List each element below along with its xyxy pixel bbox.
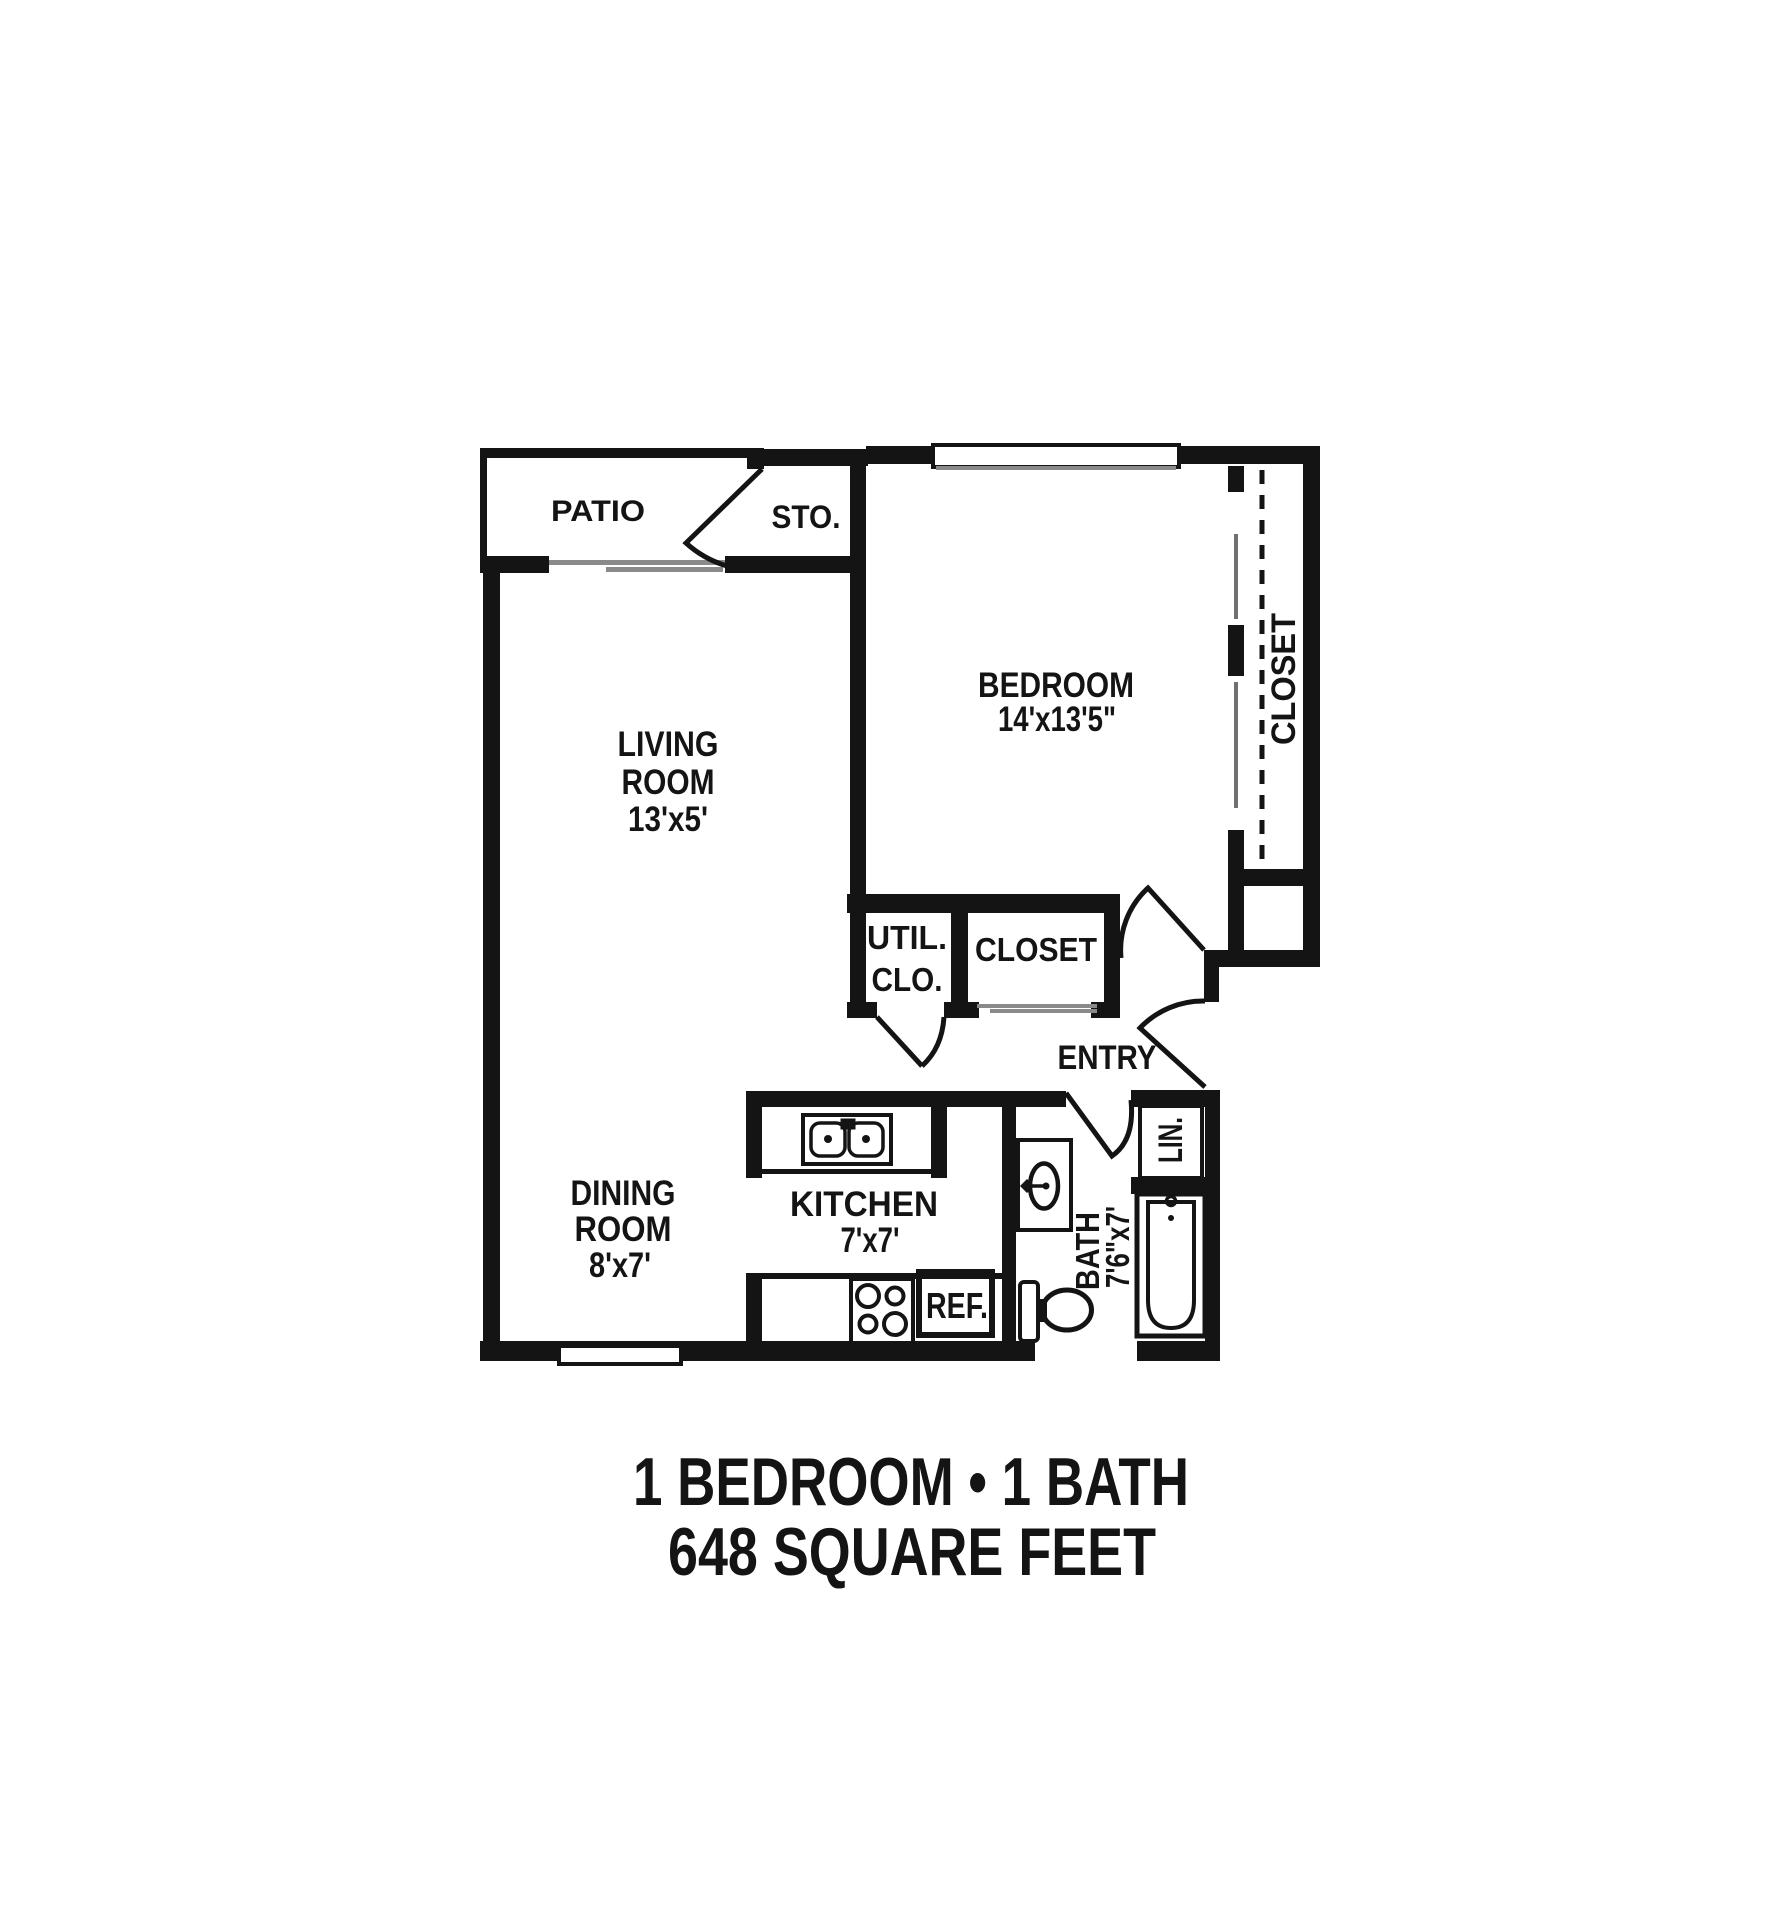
svg-text:UTIL.: UTIL. bbox=[867, 919, 947, 956]
svg-text:LIN.: LIN. bbox=[1152, 1117, 1190, 1163]
svg-text:8'x7': 8'x7' bbox=[589, 1246, 651, 1285]
svg-text:STO.: STO. bbox=[772, 499, 841, 535]
svg-text:1 BEDROOM • 1 BATH: 1 BEDROOM • 1 BATH bbox=[633, 1444, 1189, 1520]
svg-text:7'6"x7': 7'6"x7' bbox=[1099, 1206, 1136, 1288]
svg-text:REF.: REF. bbox=[926, 1285, 988, 1326]
svg-text:ROOM: ROOM bbox=[622, 763, 715, 802]
svg-text:LIVING: LIVING bbox=[618, 725, 719, 764]
svg-text:KITCHEN: KITCHEN bbox=[790, 1185, 938, 1224]
svg-text:648 SQUARE FEET: 648 SQUARE FEET bbox=[668, 1514, 1156, 1590]
svg-text:CLOSET: CLOSET bbox=[1265, 613, 1303, 745]
svg-text:PATIO: PATIO bbox=[551, 495, 645, 528]
svg-text:7'x7': 7'x7' bbox=[841, 1221, 900, 1260]
svg-text:ROOM: ROOM bbox=[575, 1210, 672, 1249]
svg-text:CLOSET: CLOSET bbox=[975, 931, 1097, 968]
svg-text:14'x13'5": 14'x13'5" bbox=[998, 700, 1116, 739]
svg-text:DINING: DINING bbox=[571, 1174, 676, 1213]
svg-text:13'x5': 13'x5' bbox=[628, 800, 708, 839]
svg-text:ENTRY: ENTRY bbox=[1058, 1039, 1157, 1077]
svg-text:CLO.: CLO. bbox=[872, 961, 943, 998]
